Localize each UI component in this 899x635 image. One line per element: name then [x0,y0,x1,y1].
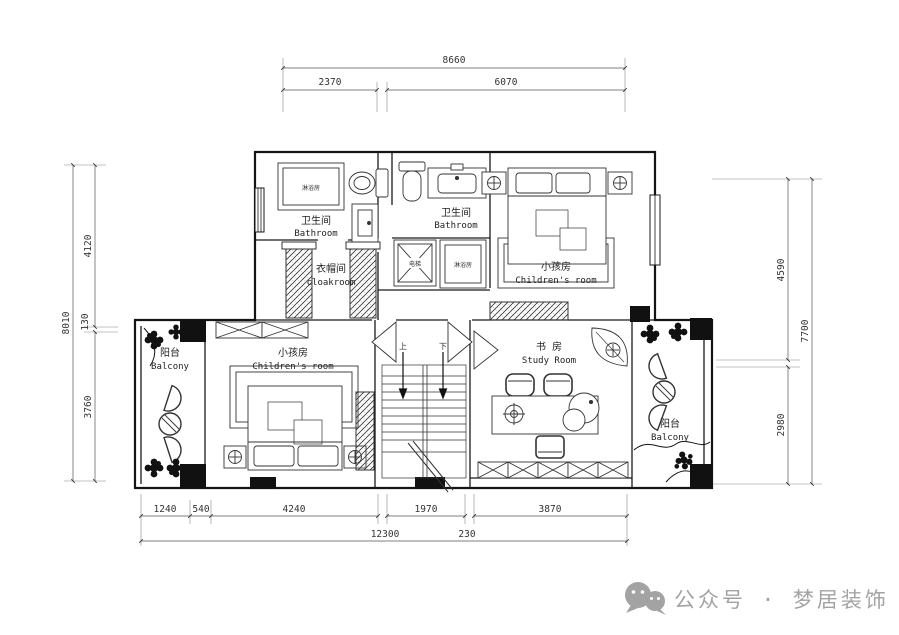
floorplan-page: 8660 2370 6070 8010 4120 130 3760 4590 2… [0,0,899,635]
mirror-cabinet [352,204,378,242]
dim-right-seg2: 2980 [776,413,787,436]
stair-up-label: 上 [399,342,407,351]
dim-bot-seg2: 540 [192,504,209,515]
watermark-text: 公众号 · 梦居装饰 [674,588,889,612]
room-labels: 淋浴房 卫生间 Bathroom 卫生间 Bathroom 淋浴房 电梯 衣帽间… [151,184,690,443]
label-bathroom2-zh: 卫生间 [441,206,471,219]
dim-top-total: 8660 [443,55,466,66]
label-balcony-right-zh: 阳台 [660,417,680,430]
label-children2-zh: 小孩房 [278,346,308,359]
dim-bot-total: 12300 [371,529,400,540]
dim-right-seg1: 4590 [776,258,787,281]
label-shower2: 淋浴房 [454,261,472,269]
dim-bot-seg4: 1970 [415,504,438,515]
label-elevator: 电梯 [409,260,421,268]
wechat-icon [625,582,666,615]
toilet-1 [349,169,388,197]
dim-right-total: 7700 [800,319,811,342]
window-right-upper [650,195,660,265]
children1-wardrobe [490,302,568,320]
label-children1-zh: 小孩房 [541,260,571,273]
dim-bot-small: 230 [458,529,475,540]
window-seat-study [478,462,628,478]
label-bathroom2-en: Bathroom [434,221,477,231]
label-balcony-left-en: Balcony [151,362,190,372]
dim-bot-seg1: 1240 [154,504,177,515]
label-study-zh: 书 房 [536,340,562,353]
watermark: 公众号 · 梦居装饰 [625,582,889,615]
label-bathroom1-zh: 卫生间 [301,214,331,227]
label-cloakroom-zh: 衣帽间 [316,262,346,275]
label-shower1: 淋浴房 [302,184,320,192]
dim-left-seg2: 130 [80,313,91,330]
children2-bed [248,386,342,470]
balcony-left-chairs [159,386,184,463]
dim-left-seg3: 3760 [83,395,94,418]
dim-bot-seg3: 4240 [283,504,306,515]
dim-top-seg2: 6070 [495,77,518,88]
children1-bed [508,168,606,264]
sink-vanity [428,164,486,198]
dim-left-seg1: 4120 [83,234,94,257]
children2-wardrobe [356,392,374,470]
dim-top-seg1: 2370 [319,77,342,88]
dim-left-total: 8010 [61,311,72,334]
window-seat-children2 [216,322,308,338]
dim-bot-seg5: 3870 [539,504,562,515]
staircase [382,365,466,492]
study-guitar [592,328,628,366]
label-children1-en: Children's room [515,276,596,286]
label-balcony-left-zh: 阳台 [160,346,180,359]
label-children2-en: Children's room [252,362,333,372]
label-bathroom1-en: Bathroom [294,229,337,239]
toilet-2 [399,162,425,201]
study-desk-set [492,374,599,458]
label-study-en: Study Room [522,356,576,366]
label-cloakroom-en: cloakroom [307,278,356,288]
door-leaves [372,322,498,369]
stair-down-label: 下 [439,342,447,351]
balcony-right-plants [634,323,710,482]
floorplan-drawing: 8660 2370 6070 8010 4120 130 3760 4590 2… [0,0,899,635]
window-left-bathroom [255,188,264,232]
label-balcony-right-en: Balcony [651,433,690,443]
